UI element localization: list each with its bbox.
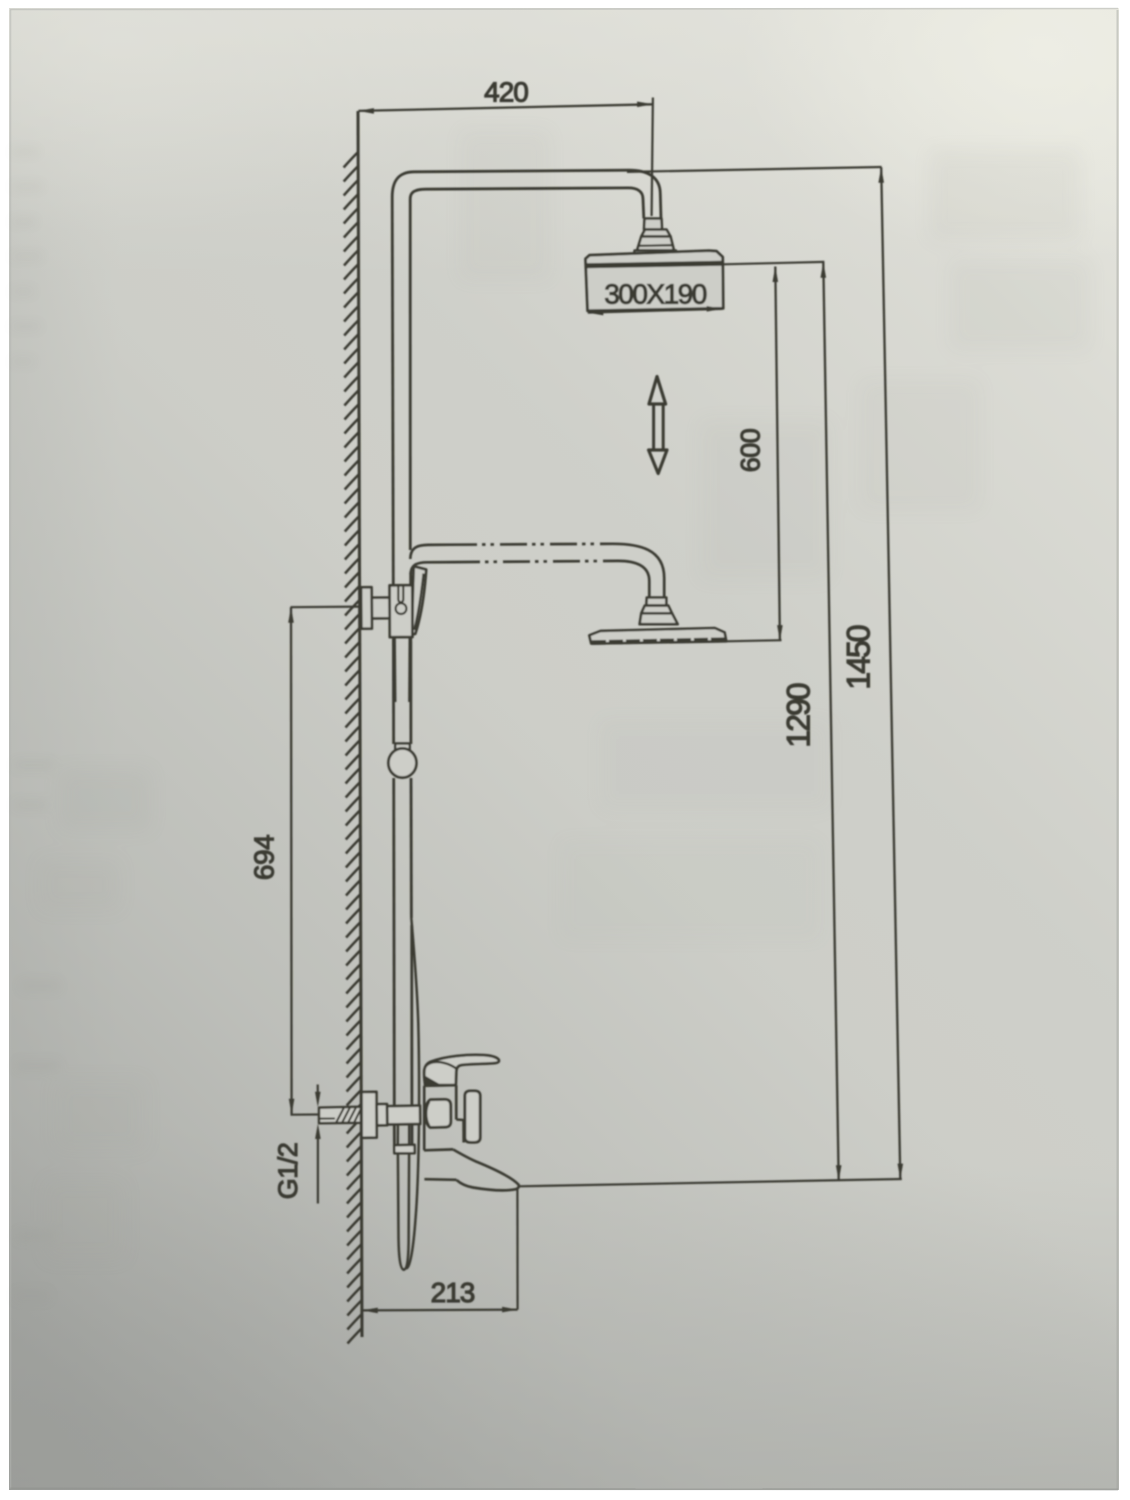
svg-text:694: 694 bbox=[249, 835, 280, 880]
svg-text:600: 600 bbox=[736, 429, 766, 473]
svg-text:G1/2: G1/2 bbox=[273, 1143, 303, 1200]
svg-text:1290: 1290 bbox=[781, 683, 817, 747]
svg-text:213: 213 bbox=[431, 1277, 475, 1308]
svg-text:420: 420 bbox=[484, 77, 528, 108]
svg-text:1450: 1450 bbox=[841, 625, 877, 689]
svg-text:300X190: 300X190 bbox=[604, 279, 707, 310]
